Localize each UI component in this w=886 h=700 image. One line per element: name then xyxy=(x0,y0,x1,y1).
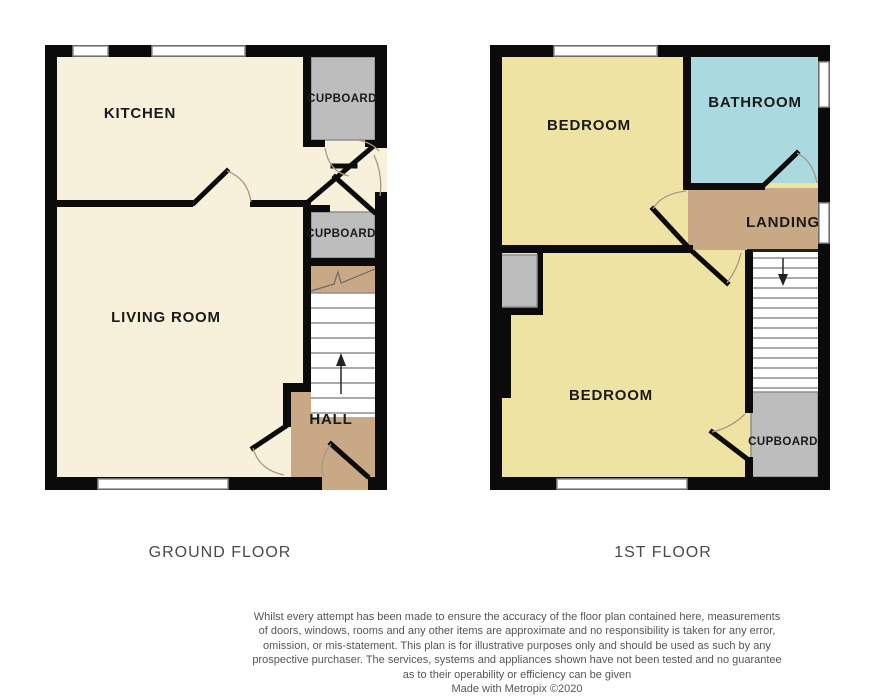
floor-plan-canvas: KITCHEN LIVING ROOM HALL CUPBOARD CUPBOA… xyxy=(0,0,886,600)
ground-floor-caption: GROUND FLOOR xyxy=(149,544,292,562)
bathroom-floor xyxy=(691,57,818,183)
gf-cupboard-top-label: CUPBOARD xyxy=(307,93,377,105)
ff-cupboard-label: CUPBOARD xyxy=(748,436,818,448)
disclaimer-line: of doors, windows, rooms and any other i… xyxy=(197,624,837,638)
disclaimer-line: as to their operability or efficiency ca… xyxy=(197,668,837,682)
bedroom-front-label: BEDROOM xyxy=(547,117,631,134)
bedroom-back-label: BEDROOM xyxy=(569,387,653,404)
first-floor-plan: BEDROOM BATHROOM LANDING BEDROOM CUPBOAR… xyxy=(490,45,830,490)
window-icon xyxy=(152,46,245,56)
hall-label: HALL xyxy=(309,411,352,428)
window-icon xyxy=(98,479,228,489)
landing-label: LANDING xyxy=(746,214,820,231)
window-icon xyxy=(557,479,687,489)
window-icon xyxy=(73,46,108,56)
kitchen-label: KITCHEN xyxy=(104,105,176,122)
gf-cupboard-mid-label: CUPBOARD xyxy=(306,228,376,240)
window-icon xyxy=(554,46,657,56)
bathroom-label: BATHROOM xyxy=(708,94,802,111)
living-room-label: LIVING ROOM xyxy=(111,309,221,326)
disclaimer-line: prospective purchaser. The services, sys… xyxy=(197,653,837,667)
window-icon xyxy=(819,62,829,107)
metropix-credit: Made with Metropix ©2020 xyxy=(197,682,837,696)
stair-landing-top xyxy=(311,266,375,293)
front-door-threshold xyxy=(322,477,368,490)
ground-floor-plan: KITCHEN LIVING ROOM HALL CUPBOARD CUPBOA… xyxy=(45,45,387,490)
disclaimer-text: Whilst every attempt has been made to en… xyxy=(197,610,837,696)
disclaimer-line: omission, or mis-statement. This plan is… xyxy=(197,639,837,653)
ff-stairs-floor xyxy=(753,250,818,392)
first-floor-caption: 1ST FLOOR xyxy=(614,544,712,562)
ff-cupboard-box xyxy=(751,392,818,477)
disclaimer-line: Whilst every attempt has been made to en… xyxy=(197,610,837,624)
window-icon xyxy=(819,203,829,243)
